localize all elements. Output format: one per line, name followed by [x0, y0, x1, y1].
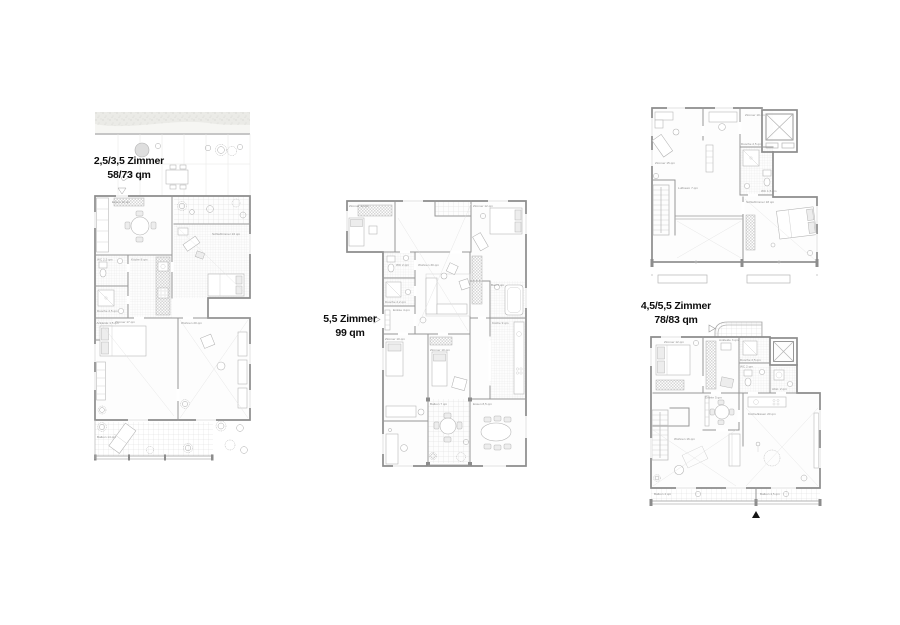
room-label: Küche 8 qm	[131, 258, 148, 262]
plan-title-middle-rooms: 5,5 Zimmer	[298, 313, 402, 327]
floor-plan-right-lower: Zimmer 12 qm Ankleide 3 qm Dusche 2,5 qm…	[636, 318, 841, 530]
dining-table-icon	[481, 423, 511, 441]
room-label: Wohnen 20 qm	[181, 321, 202, 325]
room-label: Zimmer 15 qm	[655, 161, 675, 165]
room-label: Ankleide 3 qm	[719, 338, 739, 342]
plan-title-right-rooms: 4,5/5,5 Zimmer	[615, 300, 737, 314]
room-label: Schlafzimmer 16 qm	[212, 232, 241, 236]
room-label: Küche/Essen 20 qm	[748, 412, 776, 416]
garden-strip	[95, 112, 250, 196]
room-label: Luftraum 7 qm	[678, 186, 698, 190]
room-label: Entrée 4 qm	[393, 308, 410, 312]
terrace-floor	[95, 422, 213, 456]
room-label: Schlafzimmer 18 qm	[746, 200, 775, 204]
kitchen-counter	[156, 257, 170, 315]
room-label: Zimmer 12 qm	[349, 204, 369, 208]
floor-plan-right-upper: Zimmer 15 qm Zimmer 10 qm Dusche 2,5 qm …	[645, 90, 837, 295]
room-label: Dusche 2,5 qm	[97, 309, 118, 313]
plan-title-left: 2,5/3,5 Zimmer 58/73 qm	[58, 155, 200, 182]
room-label: Entrée 5 qm	[705, 396, 722, 400]
room-label: Zimmer 12 qm	[473, 204, 493, 208]
round-table-icon	[131, 217, 149, 235]
round-table-icon	[715, 405, 729, 419]
room-label: WC 2,5 qm	[97, 258, 113, 262]
room-label: Balkon 4,5 qm	[760, 492, 780, 496]
plan-title-middle: 5,5 Zimmer 99 qm	[298, 313, 402, 340]
room-label: Wohnen 30 qm	[418, 263, 439, 267]
plan-title-left-rooms: 2,5/3,5 Zimmer	[58, 155, 200, 169]
plan-title-left-area: 58/73 qm	[58, 169, 200, 183]
door-arrow-icon	[709, 325, 715, 332]
room-label: Balkon 4 qm	[654, 492, 672, 496]
room-label: Dusche 2,5 qm	[740, 358, 761, 362]
plan-title-middle-area: 99 qm	[298, 327, 402, 341]
room-label: WC 1,5 qm	[761, 189, 777, 193]
kitchen-counter	[514, 322, 524, 394]
room-label: Essen 8,5 qm	[473, 402, 492, 406]
room-label: WC 2 qm	[396, 263, 409, 267]
round-table-icon	[440, 418, 456, 434]
essen-furniture	[481, 416, 511, 450]
floor-plan-sheet: Essen 10 qm Schlafzimmer 16 qm WC 2,5 qm…	[0, 0, 900, 625]
entry-arrow-icon	[118, 188, 126, 194]
room-label: Dusche 2,5 qm	[741, 142, 762, 146]
room-label: Balkon 7 qm	[430, 402, 448, 406]
room-label: Zimmer 17 qm	[115, 320, 135, 324]
room-label: Küche 9 qm	[492, 321, 509, 325]
room-label: Essen 10 qm	[112, 200, 130, 204]
room-label: WC 2 qm	[740, 365, 753, 369]
room-label: Zimmer 10 qm	[745, 113, 765, 117]
room-label: Abst. 2 qm	[772, 387, 787, 391]
room-label: Zimmer 12 qm	[664, 340, 684, 344]
balcony-floor	[651, 488, 820, 501]
room-label: Zimmer 10 qm	[430, 348, 450, 352]
room-label: Bad 5 qm	[491, 283, 505, 287]
room-label: Dusche 2,2 qm	[385, 300, 406, 304]
room-label: Wohnen 16 qm	[674, 437, 695, 441]
room-label: Balkon 14 qm	[97, 435, 116, 439]
north-arrow-icon	[752, 511, 760, 518]
